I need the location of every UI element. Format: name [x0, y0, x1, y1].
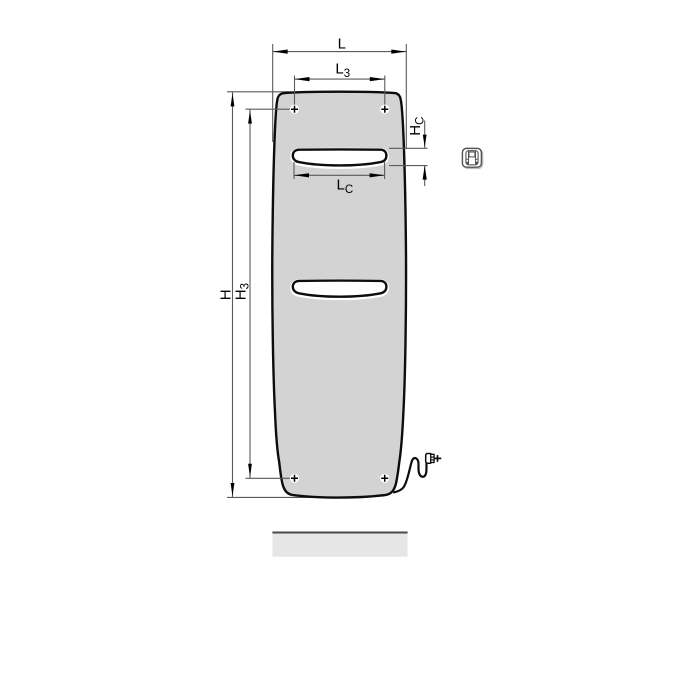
svg-text:L: L	[338, 35, 346, 52]
